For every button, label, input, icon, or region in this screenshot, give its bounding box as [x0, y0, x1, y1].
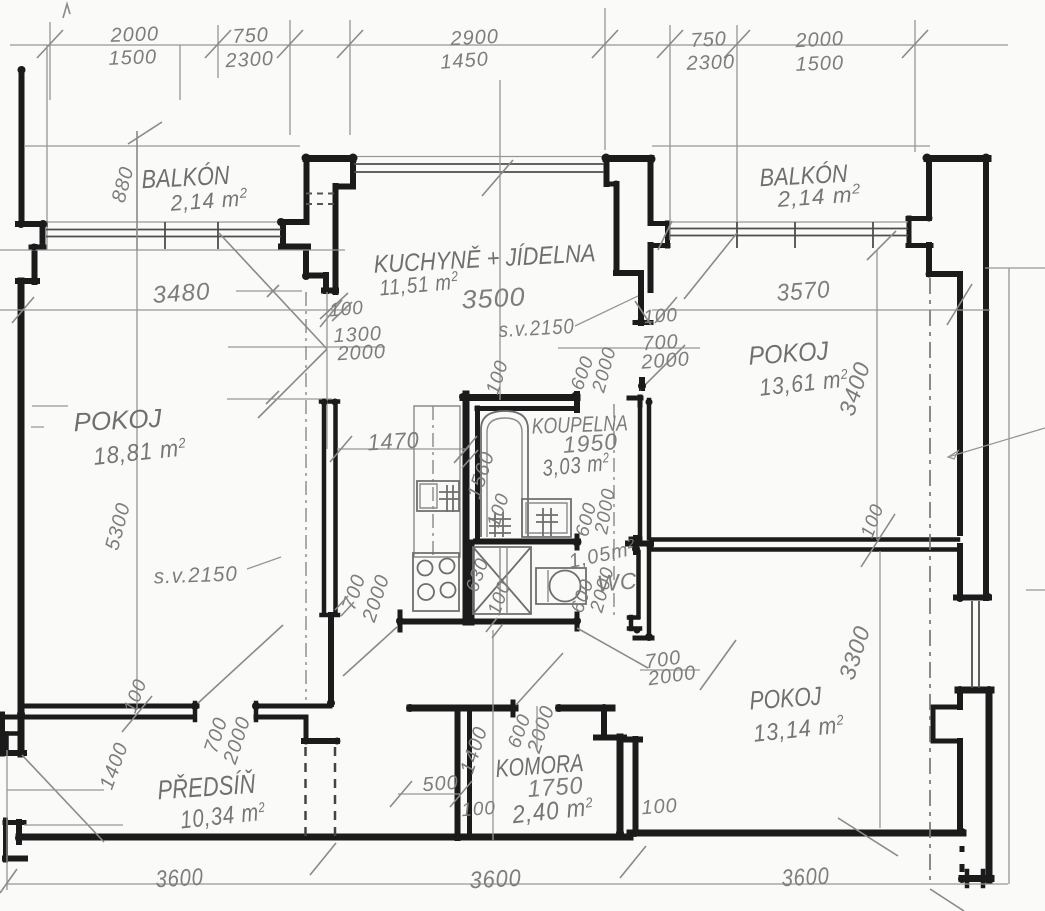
svg-text:POKOJ: POKOJ [748, 680, 823, 715]
svg-text:100: 100 [328, 298, 364, 322]
svg-text:2300: 2300 [224, 48, 275, 73]
svg-text:2000: 2000 [336, 341, 387, 366]
svg-text:1500: 1500 [108, 46, 157, 70]
svg-text:POKOJ: POKOJ [73, 403, 163, 438]
svg-text:1470: 1470 [367, 427, 420, 456]
svg-text:3600: 3600 [781, 863, 830, 892]
svg-text:2000: 2000 [640, 348, 691, 373]
svg-text:2,14 m2: 2,14 m2 [169, 184, 250, 215]
svg-text:100: 100 [461, 798, 497, 821]
svg-text:2000: 2000 [109, 23, 159, 47]
svg-text:3480: 3480 [152, 278, 212, 309]
svg-text:s.v.2150: s.v.2150 [498, 315, 575, 342]
svg-text:100: 100 [641, 795, 679, 819]
svg-text:750: 750 [232, 24, 269, 48]
svg-text:s.v.2150: s.v.2150 [153, 563, 238, 589]
svg-text:750: 750 [690, 28, 727, 52]
svg-text:500: 500 [422, 772, 460, 796]
svg-text:3600: 3600 [469, 865, 522, 895]
svg-text:3570: 3570 [776, 276, 832, 307]
svg-text:3600: 3600 [155, 864, 204, 893]
svg-text:2900: 2900 [449, 26, 500, 51]
svg-text:2000: 2000 [794, 28, 845, 53]
svg-text:POKOJ: POKOJ [747, 335, 830, 371]
svg-text:1450: 1450 [440, 48, 490, 73]
svg-text:2300: 2300 [685, 51, 735, 75]
svg-text:3500: 3500 [461, 281, 526, 314]
svg-text:100: 100 [643, 305, 679, 328]
svg-text:1500: 1500 [795, 52, 844, 76]
